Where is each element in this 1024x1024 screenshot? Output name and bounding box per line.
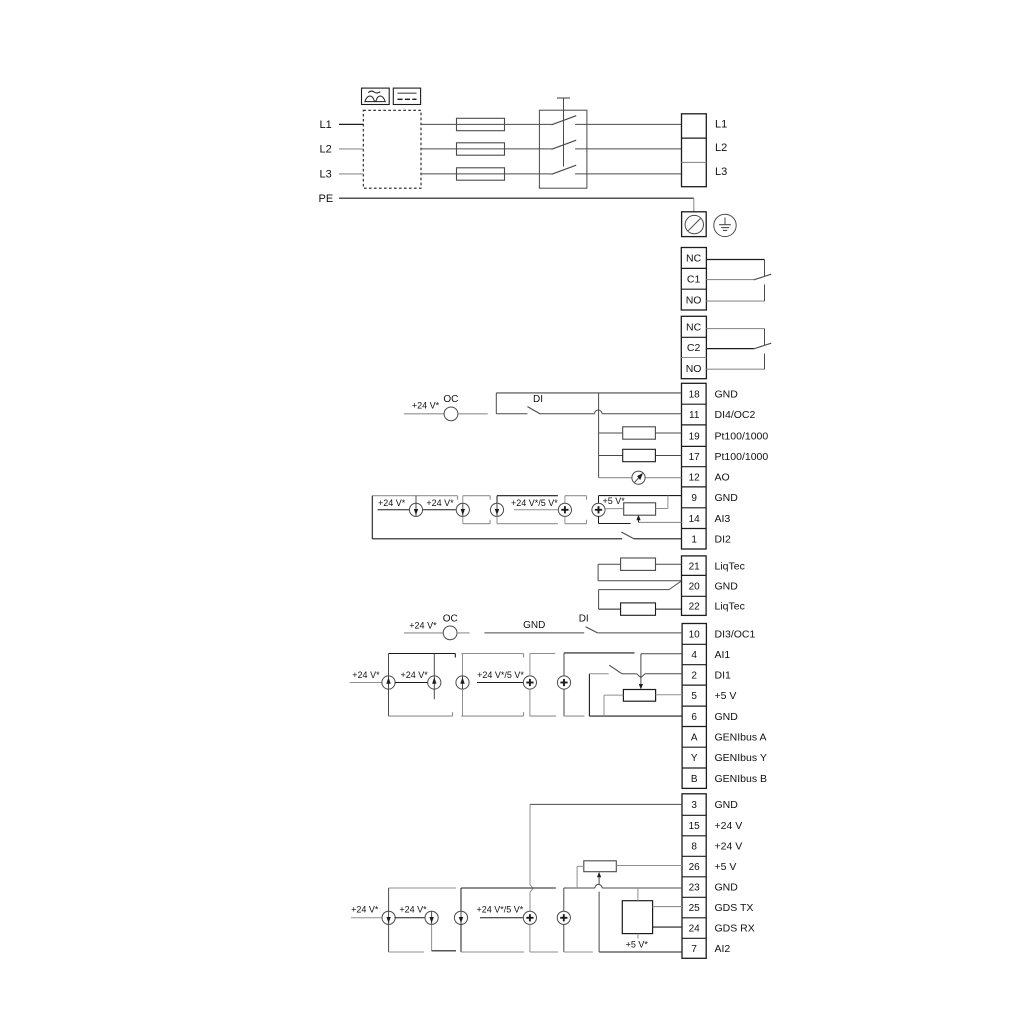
svg-text:23: 23 [689,883,701,894]
svg-text:+24 V*: +24 V* [409,621,437,631]
svg-text:1: 1 [691,534,697,545]
svg-text:L1: L1 [320,119,332,131]
svg-text:NC: NC [686,322,702,334]
svg-text:DI2: DI2 [715,533,732,545]
svg-text:+24 V*/5 V*: +24 V*/5 V* [477,905,524,915]
svg-text:GENIbus Y: GENIbus Y [715,752,767,764]
svg-text:PE: PE [319,193,334,205]
svg-text:+24 V*: +24 V* [401,670,429,680]
svg-text:L2: L2 [715,142,727,154]
svg-text:DI1: DI1 [715,670,732,682]
svg-text:C2: C2 [687,342,701,354]
svg-text:7: 7 [691,944,697,955]
svg-text:GND: GND [715,492,739,504]
svg-text:12: 12 [689,472,701,483]
svg-text:+24 V*: +24 V* [412,400,440,410]
svg-text:25: 25 [689,903,701,914]
svg-text:9: 9 [691,493,697,504]
svg-text:LiqTec: LiqTec [715,560,745,572]
svg-text:OC: OC [443,613,458,624]
svg-text:+24 V*: +24 V* [352,670,380,680]
svg-text:18: 18 [689,389,701,400]
svg-text:DI: DI [533,394,543,405]
svg-text:+24 V*: +24 V* [351,905,379,915]
svg-text:GND: GND [715,799,739,811]
svg-text:OC: OC [443,394,458,405]
svg-text:B: B [691,774,698,785]
svg-text:NC: NC [686,253,702,265]
svg-text:C1: C1 [687,274,701,286]
svg-text:GENIbus B: GENIbus B [715,773,768,785]
svg-text:Y: Y [691,753,698,764]
svg-text:Pt100/1000: Pt100/1000 [715,451,769,463]
svg-text:5: 5 [691,691,697,702]
svg-text:+5 V: +5 V [715,861,737,873]
svg-text:+24 V*: +24 V* [426,498,454,508]
svg-text:+24 V: +24 V [715,841,743,853]
svg-text:+5 V: +5 V [715,690,737,702]
svg-text:L1: L1 [715,118,727,130]
svg-text:GDS RX: GDS RX [715,923,755,935]
svg-text:2: 2 [691,671,697,682]
svg-text:GND: GND [715,580,739,592]
svg-text:DI4/OC2: DI4/OC2 [715,409,756,421]
svg-text:21: 21 [689,561,701,572]
svg-text:NO: NO [686,294,702,306]
svg-text:17: 17 [689,452,701,463]
svg-text:AI3: AI3 [715,513,731,525]
svg-text:DI: DI [579,613,589,624]
svg-text:L2: L2 [320,144,332,156]
svg-text:GENIbus A: GENIbus A [715,731,767,743]
svg-text:AI1: AI1 [715,649,731,661]
svg-text:GDS TX: GDS TX [715,902,754,914]
svg-text:GND: GND [715,711,739,723]
svg-text:A: A [691,732,698,743]
svg-text:+24 V*/5 V*: +24 V*/5 V* [511,498,558,508]
svg-text:AI2: AI2 [715,943,731,955]
svg-text:+24 V*/5 V*: +24 V*/5 V* [477,670,524,680]
svg-text:Pt100/1000: Pt100/1000 [715,430,769,442]
svg-text:8: 8 [691,842,697,853]
svg-text:L3: L3 [320,169,332,181]
svg-text:GND: GND [715,882,739,894]
svg-text:14: 14 [689,514,701,525]
svg-text:AO: AO [715,471,730,483]
svg-text:+24 V*: +24 V* [378,498,406,508]
svg-text:22: 22 [689,601,701,612]
svg-text:10: 10 [689,630,701,641]
svg-text:15: 15 [689,821,701,832]
svg-text:3: 3 [691,800,697,811]
svg-text:24: 24 [689,924,701,935]
svg-text:GND: GND [523,620,545,631]
svg-text:6: 6 [691,712,697,723]
svg-text:4: 4 [691,650,697,661]
svg-text:26: 26 [689,862,701,873]
svg-text:20: 20 [689,581,701,592]
svg-text:19: 19 [689,431,701,442]
svg-text:LiqTec: LiqTec [715,600,745,612]
svg-text:+5 V*: +5 V* [603,496,626,506]
svg-text:+24 V: +24 V [715,820,743,832]
svg-text:DI3/OC1: DI3/OC1 [715,629,756,641]
svg-text:L3: L3 [715,166,727,178]
svg-text:+24 V*: +24 V* [399,905,427,915]
svg-text:11: 11 [689,410,700,421]
svg-text:NO: NO [686,363,702,375]
svg-text:GND: GND [715,388,739,400]
svg-text:+5 V*: +5 V* [626,940,649,950]
